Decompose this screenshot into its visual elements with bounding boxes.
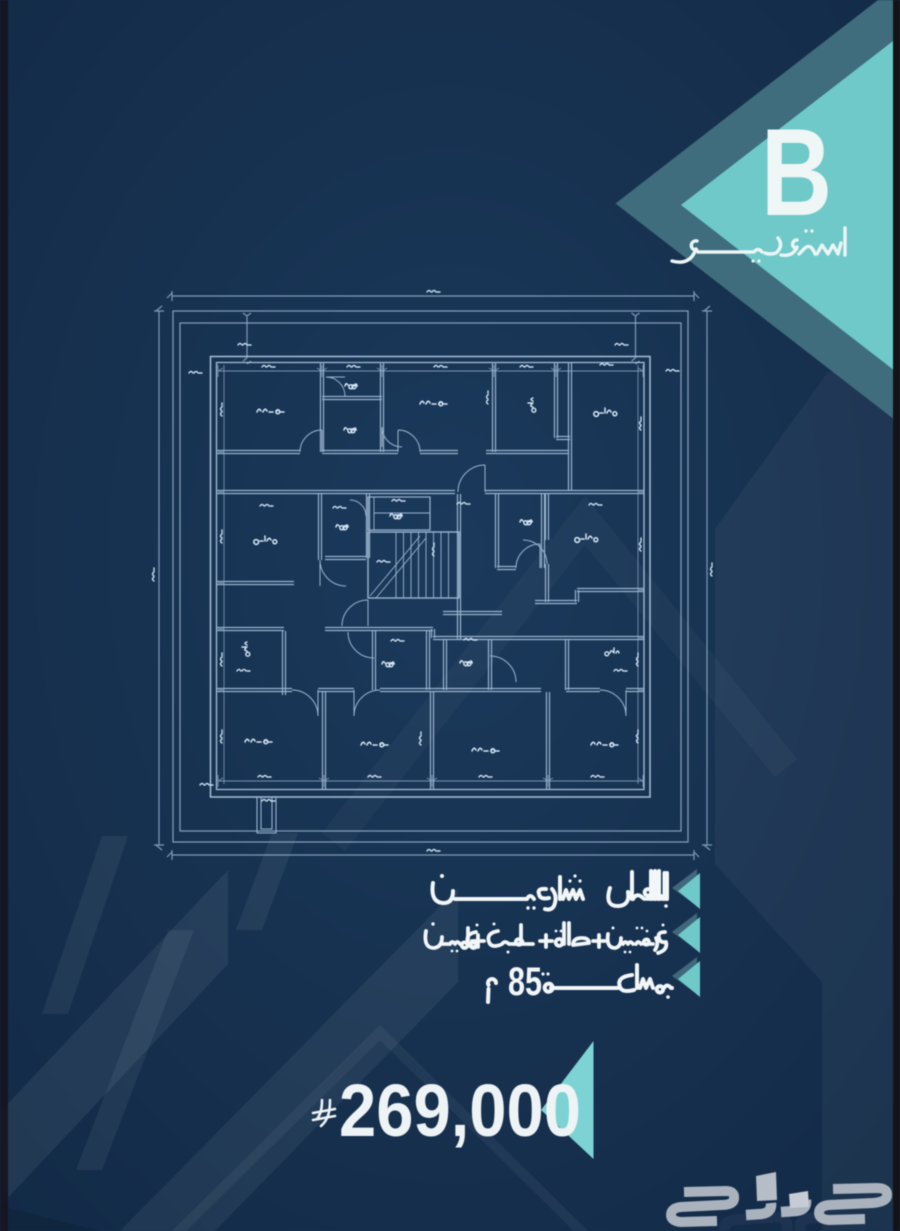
svg-text:269,000: 269,000 [339, 1069, 581, 1152]
svg-text:B: B [761, 104, 832, 242]
svg-text:85: 85 [508, 960, 542, 1004]
